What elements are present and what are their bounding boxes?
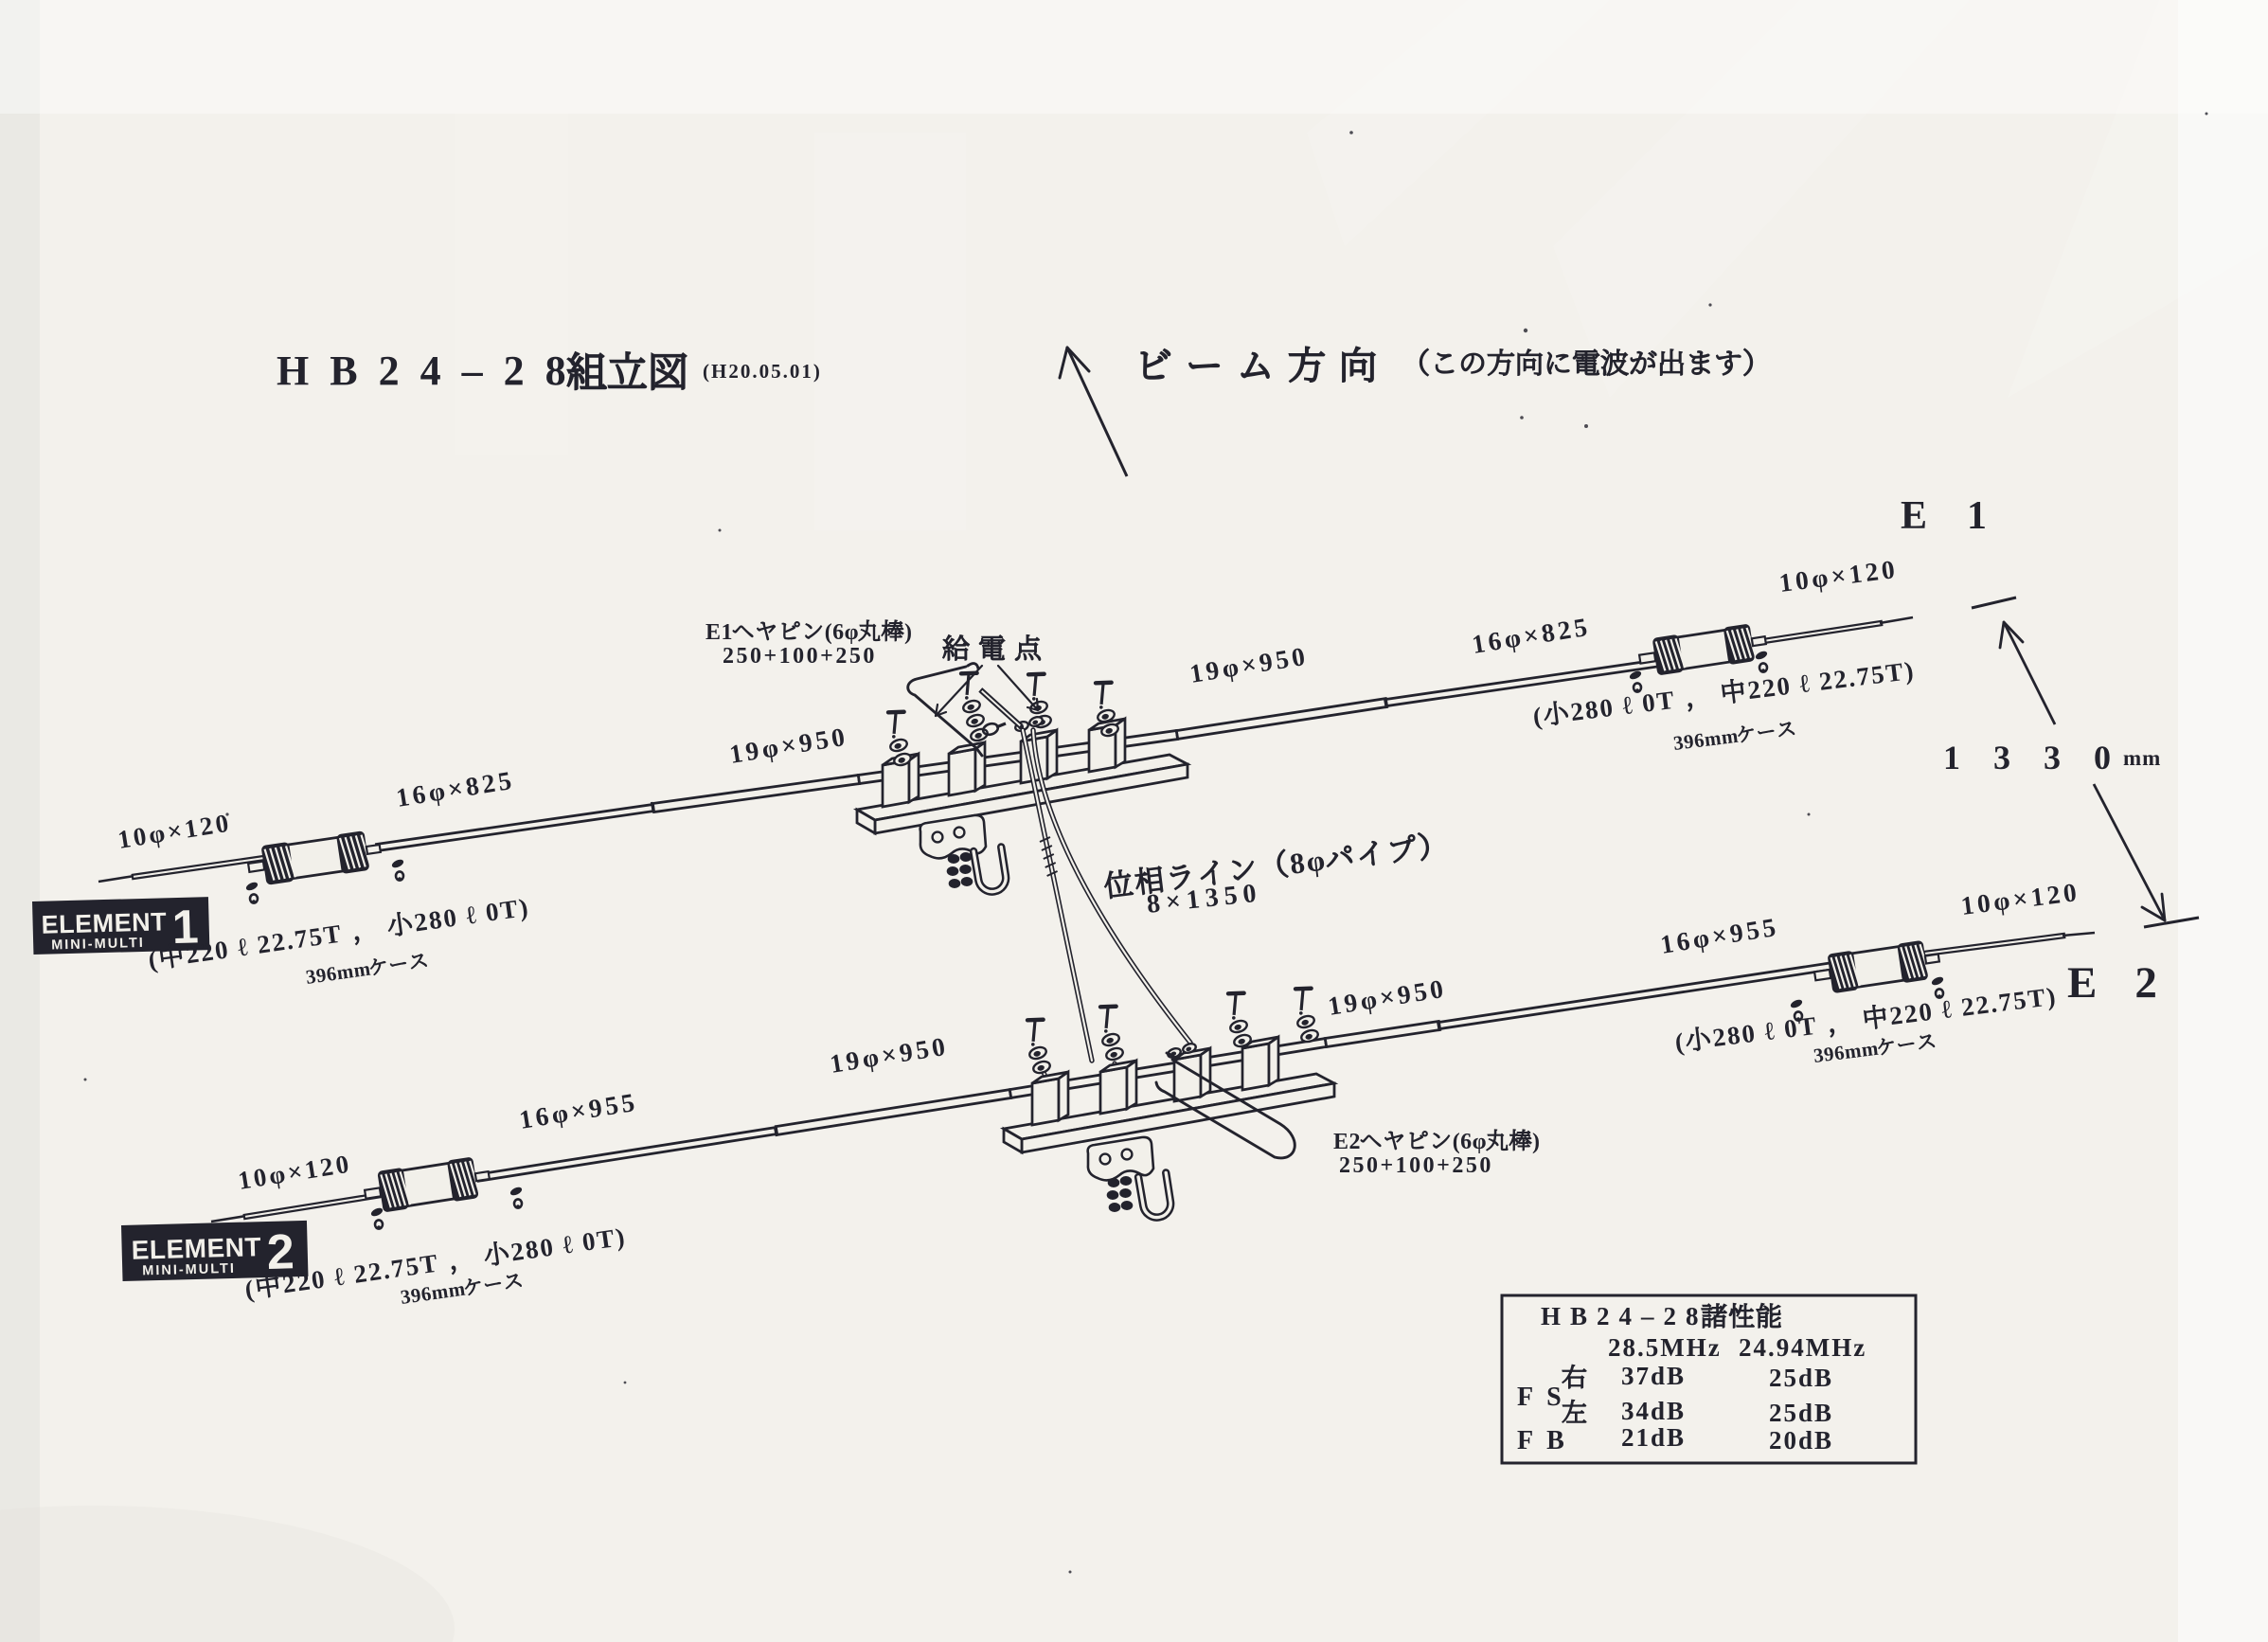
svg-text:ELEMENT: ELEMENT — [41, 907, 167, 938]
svg-text:E1: E1 — [705, 620, 733, 645]
svg-text:37dB: 37dB — [1621, 1362, 1686, 1390]
svg-text:21dB: 21dB — [1621, 1423, 1686, 1452]
svg-text:): ) — [904, 620, 913, 645]
svg-text:24.94MHz: 24.94MHz — [1739, 1333, 1866, 1362]
svg-text:(6φ: (6φ — [825, 620, 859, 645]
svg-text:8φ: 8φ — [1288, 843, 1329, 880]
svg-text:25dB: 25dB — [1769, 1364, 1833, 1392]
svg-text:F B: F B — [1517, 1426, 1568, 1455]
svg-text:mm: mm — [2123, 746, 2161, 770]
svg-text:E2: E2 — [1333, 1130, 1361, 1154]
svg-text:28.5MHz: 28.5MHz — [1608, 1333, 1722, 1362]
svg-text:25dB: 25dB — [1769, 1399, 1833, 1427]
svg-text:E2: E2 — [2067, 958, 2195, 1008]
svg-text:250+100+250: 250+100+250 — [1339, 1153, 1493, 1178]
svg-text:HB24–28: HB24–28 — [277, 348, 587, 394]
svg-text:34dB: 34dB — [1621, 1397, 1686, 1425]
svg-text:MINI-MULTI: MINI-MULTI — [51, 936, 145, 954]
svg-text:): ) — [1532, 1130, 1541, 1154]
svg-text:(6φ: (6φ — [1453, 1130, 1487, 1154]
svg-text:1330: 1330 — [1943, 739, 2144, 776]
svg-text:MINI-MULTI: MINI-MULTI — [142, 1261, 236, 1279]
svg-text:20dB: 20dB — [1769, 1426, 1833, 1455]
svg-text:ELEMENT: ELEMENT — [131, 1232, 261, 1265]
svg-text:HB24–28: HB24–28 — [1541, 1302, 1708, 1330]
svg-text:250+100+250: 250+100+250 — [723, 644, 877, 669]
svg-text:E1: E1 — [1901, 494, 2027, 538]
svg-text:F S: F S — [1517, 1383, 1565, 1412]
svg-text:(H20.05.01): (H20.05.01) — [703, 360, 822, 383]
